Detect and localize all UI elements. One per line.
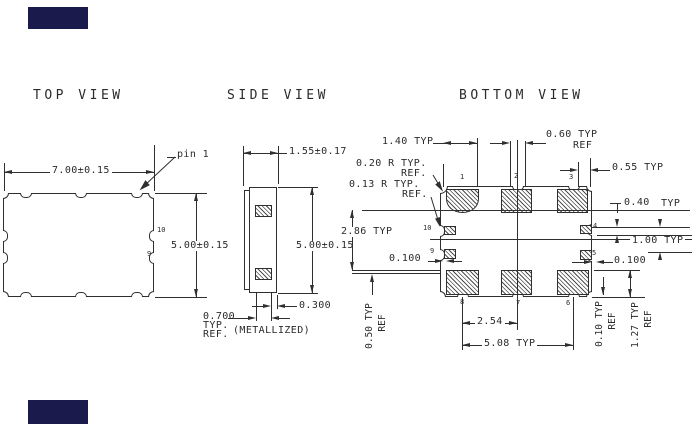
pad-3-label: 3	[569, 174, 573, 181]
arrowhead	[271, 316, 279, 320]
arrowhead	[525, 141, 533, 145]
dim-tail	[490, 143, 502, 144]
pad-10	[444, 226, 456, 235]
pad-edge-ref: REF	[608, 309, 618, 333]
leader-line	[610, 203, 621, 204]
dim-tail	[428, 261, 435, 262]
arrowhead	[628, 270, 632, 278]
package-drawing: TOP VIEW SIDE VIEW BOTTOM VIEW 10 9 7.00…	[0, 0, 692, 434]
castellation-notch	[3, 252, 8, 264]
arrowhead	[615, 219, 619, 227]
dim-line	[372, 282, 373, 295]
arrowhead	[350, 210, 354, 218]
edge-dim: 0.55 TYP	[612, 163, 663, 173]
pad-2-label: 2	[514, 173, 518, 180]
arrowhead	[194, 193, 198, 201]
side-pad-height-typ: TYP	[661, 199, 680, 209]
arrowhead	[462, 343, 470, 347]
span-dim: 2.86 TYP	[339, 227, 394, 237]
pad-width-dim: 1.40 TYP	[382, 137, 433, 147]
top-view-title: TOP VIEW	[33, 88, 124, 103]
ext-line	[4, 163, 5, 191]
pad-5	[580, 250, 592, 260]
ext-line	[155, 193, 207, 194]
side-view-title: SIDE VIEW	[227, 88, 329, 103]
side-pitch-dim: 1.00 TYP	[630, 236, 685, 246]
arrowhead	[146, 170, 154, 174]
ext-line	[592, 297, 645, 298]
pad-6-label: 6	[566, 300, 570, 307]
castellation-notch	[149, 230, 154, 242]
redaction-block-top	[28, 7, 88, 29]
top-view-pin9-label: 9	[147, 251, 151, 258]
ext-line	[155, 297, 207, 298]
arrowhead	[658, 219, 662, 227]
leader-line	[167, 157, 176, 158]
arrowhead	[270, 151, 278, 155]
arrowhead	[277, 304, 285, 308]
castellation-notch	[75, 292, 87, 297]
ext-line	[592, 227, 690, 228]
top-view-pin10-label: 10	[157, 227, 165, 234]
notch-width-ref: REF	[573, 141, 592, 151]
ext-line	[573, 297, 574, 350]
side-height-dim: 5.00±0.15	[294, 241, 356, 251]
corner-notch	[148, 193, 154, 199]
arrowhead	[509, 321, 517, 325]
side-inset-dim: 0.300	[299, 301, 331, 311]
ext-line	[352, 270, 440, 271]
side-pad-lower	[255, 268, 272, 280]
corner-notch	[3, 291, 9, 297]
row-offset-ref: REF	[644, 307, 654, 331]
arrowhead	[248, 316, 256, 320]
row-offset-dim: 1.27 TYP	[631, 300, 641, 350]
ext-line	[648, 252, 692, 253]
dim-tail	[598, 170, 610, 171]
arrowhead	[628, 289, 632, 297]
arrowhead	[601, 287, 605, 295]
side-ref-label: REF.	[203, 330, 229, 340]
arrowhead	[469, 141, 477, 145]
radius2-ref: REF.	[402, 190, 428, 200]
ext-line	[590, 158, 591, 187]
side-pad-upper	[255, 205, 272, 217]
notch-width-dim: 0.60 TYP	[546, 130, 597, 140]
dim-tail	[228, 318, 248, 319]
castellation-notch	[131, 193, 143, 198]
castellation-notch	[131, 292, 143, 297]
arrowhead	[615, 235, 619, 243]
dim-tail	[252, 306, 263, 307]
castellation-notch	[20, 193, 32, 198]
arrowhead	[194, 289, 198, 297]
castellation-notch	[3, 230, 8, 242]
dim-tail	[433, 143, 443, 144]
ext-line	[278, 146, 279, 184]
ext-line	[525, 141, 526, 187]
dim-tail	[285, 306, 297, 307]
arrowhead	[462, 321, 470, 325]
pad-5-label: 5	[592, 250, 596, 257]
castellation-notch	[75, 193, 87, 198]
radius1-ref: REF.	[401, 169, 427, 179]
ext-line	[594, 270, 640, 271]
pad-9	[444, 249, 456, 259]
dim-tail	[572, 262, 584, 263]
ext-line	[256, 293, 257, 321]
top-view-outline	[3, 193, 154, 297]
top-height-dim: 5.00±0.15	[169, 241, 231, 251]
dim-tail	[604, 262, 613, 263]
pad-edge-dim: 0.10 TYP	[595, 299, 605, 349]
dim-line	[352, 210, 353, 270]
arrowhead	[4, 170, 12, 174]
pad-9-label: 9	[430, 248, 434, 255]
bottom-clearance-dim: 0.50 TYP	[365, 301, 375, 351]
ext-line	[510, 141, 511, 187]
arrowhead	[596, 260, 604, 264]
arrowhead	[584, 260, 592, 264]
row-span-dim: 5.08 TYP	[482, 339, 537, 349]
arrowhead	[310, 187, 314, 195]
arrowhead	[350, 262, 354, 270]
arrowhead	[263, 304, 271, 308]
ext-line	[278, 293, 318, 294]
arrowhead	[370, 274, 374, 282]
arrowhead	[446, 259, 454, 263]
arrowhead	[435, 259, 443, 263]
metallized-note: (METALLIZED)	[233, 326, 310, 336]
dim-tail	[279, 318, 290, 319]
bottom-clearance-ref: REF	[378, 311, 388, 335]
dim-tail	[533, 143, 546, 144]
corner-notch	[3, 193, 9, 199]
pad-8	[446, 270, 479, 295]
arrowhead	[243, 151, 251, 155]
pin1-label: pin 1	[177, 150, 209, 160]
arrowhead	[310, 285, 314, 293]
dim-tail	[454, 261, 462, 262]
leader-line	[617, 203, 618, 213]
arrowhead	[590, 168, 598, 172]
construction-line	[362, 210, 690, 211]
ext-line	[154, 145, 155, 191]
arrowhead	[570, 168, 578, 172]
redaction-block-bottom	[28, 400, 88, 424]
pad-4	[580, 225, 592, 234]
arrowhead	[658, 252, 662, 260]
pitch-dim: 2.54	[475, 317, 505, 327]
ext-line	[578, 162, 579, 187]
side-width-dim: 1.55±0.17	[289, 147, 347, 157]
top-width-dim: 7.00±0.15	[50, 166, 112, 176]
ext-line	[352, 273, 440, 274]
clearance-right-dim: 0.100	[614, 256, 646, 266]
side-pad-height-dim: 0.40	[624, 198, 650, 208]
pad-1-label: 1	[460, 174, 464, 181]
ext-line	[517, 297, 518, 330]
arrowhead	[502, 141, 510, 145]
castellation-notch	[20, 292, 32, 297]
dim-tail	[560, 170, 570, 171]
clearance-left-dim: 0.100	[389, 254, 421, 264]
arrowhead	[443, 141, 451, 145]
ext-line	[443, 164, 444, 187]
ext-line	[477, 138, 478, 187]
side-view-lid	[244, 190, 250, 290]
pad-10-label: 10	[423, 225, 431, 232]
corner-notch	[148, 291, 154, 297]
bottom-view-title: BOTTOM VIEW	[459, 88, 584, 103]
arrowhead	[565, 343, 573, 347]
pad-6	[557, 270, 589, 295]
